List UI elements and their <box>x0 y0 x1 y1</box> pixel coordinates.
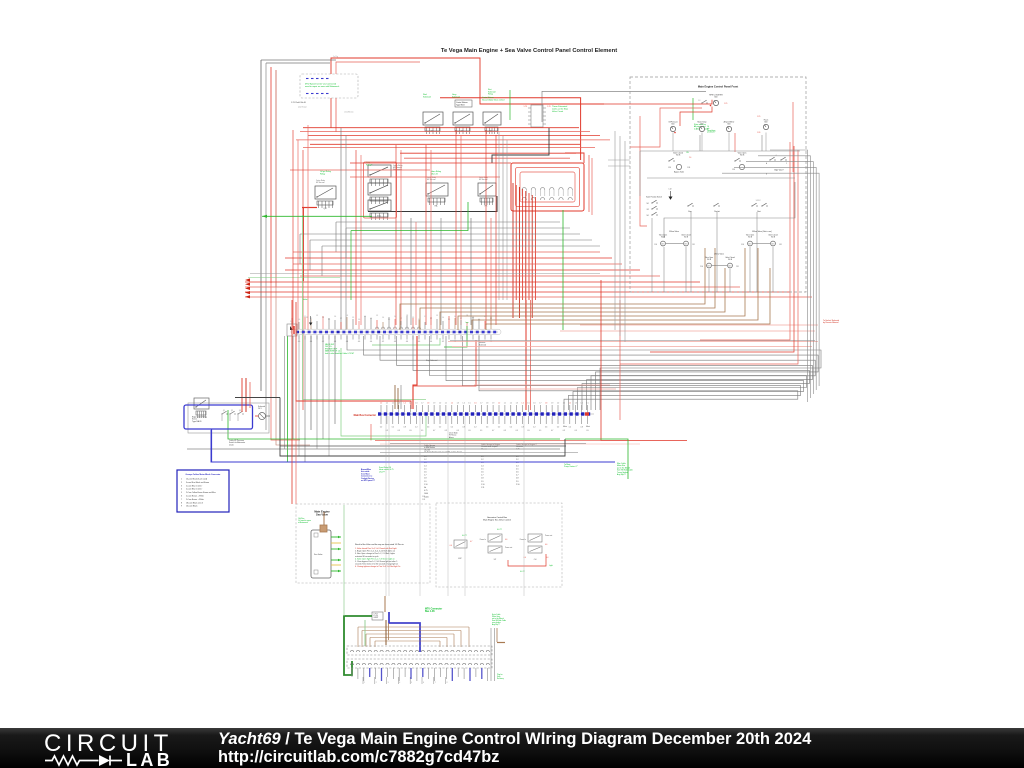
svg-text:1.6: 1.6 <box>481 472 484 474</box>
svg-text:2.6: 2.6 <box>689 157 691 159</box>
svg-text:8Slew Valve (Not in use): 8Slew Valve (Not in use) <box>752 230 772 233</box>
svg-text:UP: UP <box>494 559 497 561</box>
svg-text:8: 8 <box>447 682 448 684</box>
svg-text:1: 1 <box>181 479 182 481</box>
svg-text:1. Valve closed Pins 3+4, 5+6: 1. Valve closed Pins 3+4, 5+6 Closed wit… <box>355 547 397 550</box>
svg-text:700 B: 700 B <box>707 259 711 261</box>
svg-text:Bolt: Bolt <box>728 123 731 126</box>
svg-text:0.4: 0.4 <box>510 427 512 429</box>
svg-text:700 B: 700 B <box>748 236 752 238</box>
svg-text:Light: Light <box>549 564 553 567</box>
svg-text:onw throat: onw throat <box>298 106 307 109</box>
svg-text:0.5: 0.5 <box>527 430 529 432</box>
svg-text:0.4: 0.4 <box>569 427 571 429</box>
svg-text:0.5: 0.5 <box>409 430 411 432</box>
svg-text:1.2: 1.2 <box>451 403 453 405</box>
svg-text:0.8: 0.8 <box>394 341 396 343</box>
svg-text:Temp/alarm: Temp/alarm <box>707 130 716 132</box>
svg-text:0.3: 0.3 <box>504 430 506 432</box>
svg-text:0.2: 0.2 <box>533 427 535 429</box>
svg-text:1.3: 1.3 <box>376 315 378 317</box>
svg-text:1.4: 1.4 <box>382 317 384 319</box>
svg-text:2Slew Valve: 2Slew Valve <box>714 254 724 256</box>
svg-text:1.9: 1.9 <box>424 481 427 483</box>
svg-text:0.0: 0.0 <box>498 427 500 429</box>
svg-text:1.4: 1.4 <box>462 403 464 405</box>
svg-text:from SB Side Cable: from SB Side Cable <box>492 620 506 622</box>
svg-text:1.26: 1.26 <box>757 132 760 134</box>
svg-text:1.3: 1.3 <box>424 462 427 464</box>
svg-text:1.1: 1.1 <box>386 403 388 405</box>
svg-text:1.4: 1.4 <box>403 403 405 405</box>
svg-text:1.6: 1.6 <box>415 403 417 405</box>
svg-text:5Slew Valve: 5Slew Valve <box>669 231 679 233</box>
svg-text:2.2: 2.2 <box>516 459 519 461</box>
svg-text:Groups Cables Motor Block Conn: Groups Cables Motor Block Connector <box>186 473 221 476</box>
svg-text:Q2: Q2 <box>231 410 233 412</box>
svg-text:1.4: 1.4 <box>481 465 484 467</box>
svg-text:1.0: 1.0 <box>439 403 441 405</box>
svg-text:0.5: 0.5 <box>586 430 588 432</box>
svg-text:Oil: Oil <box>707 126 710 128</box>
svg-text:1.3: 1.3 <box>436 315 438 317</box>
svg-text:Pump Contact 'Y': Pump Contact 'Y' <box>564 465 578 468</box>
svg-text:2: 2 <box>376 682 377 684</box>
svg-text:0.8: 0.8 <box>462 427 464 429</box>
svg-text:look in after MainBox Cable 0.: look in after MainBox Cable 0.75 MT <box>325 352 355 355</box>
svg-text:1.25: 1.25 <box>724 103 727 105</box>
svg-text:1.2: 1.2 <box>424 459 427 461</box>
svg-text:Alarm: Alarm <box>449 436 454 439</box>
svg-text:MV Vacuum: MV Vacuum <box>479 179 488 181</box>
svg-text:1.2: 1.2 <box>306 317 308 319</box>
svg-text:1.6: 1.6 <box>394 316 396 318</box>
svg-text:1.4: 1.4 <box>322 317 324 319</box>
svg-text:2-Core Blue 1.5mm²: 2-Core Blue 1.5mm² <box>186 484 203 487</box>
svg-text:1.0: 1.0 <box>498 403 500 405</box>
svg-text:1.1 1.2: 1.1 1.2 <box>756 200 761 202</box>
svg-text:0.9: 0.9 <box>398 430 400 432</box>
svg-text:1.9: 1.9 <box>551 403 553 405</box>
svg-text:0.4.77: 0.4.77 <box>497 529 502 531</box>
svg-text:0.0: 0.0 <box>557 427 559 429</box>
svg-text:Power out: Power out <box>545 534 553 537</box>
svg-text:0.75: 0.75 <box>424 490 428 492</box>
svg-text:5. Close bypass Pins 1+2, 3+8: 5. Close bypass Pins 1+2, 3+8 Green ligh… <box>355 560 397 563</box>
svg-text:0.8: 0.8 <box>403 427 405 429</box>
svg-text:2: 2 <box>181 482 182 484</box>
svg-text:2: 2 <box>786 163 787 165</box>
svg-text:B: B <box>766 174 767 176</box>
svg-text:0.4: 0.4 <box>450 545 452 547</box>
svg-text:1.2: 1.2 <box>481 459 484 461</box>
svg-text:Main Bus Connector: Main Bus Connector <box>354 414 376 417</box>
svg-text:0.6: 0.6 <box>427 427 429 429</box>
svg-text:2-Core Brown + White: 2-Core Brown + White <box>186 495 204 498</box>
svg-text:700 B: 700 B <box>676 155 681 157</box>
svg-text:QM: QM <box>323 208 327 210</box>
svg-text:LAB: LAB <box>126 752 173 768</box>
svg-text:Type RA-31: Type RA-31 <box>192 420 202 423</box>
svg-text:1.4: 1.4 <box>442 317 444 319</box>
svg-text:Carter Relay: Carter Relay <box>479 176 488 179</box>
svg-text:1.25: 1.25 <box>422 496 425 498</box>
svg-text:1.5: 1.5 <box>424 468 427 470</box>
svg-text:24 V: 24 V <box>258 408 262 410</box>
svg-text:Extra Cable: Extra Cable <box>492 613 500 616</box>
svg-text:1.1: 1.1 <box>504 403 506 405</box>
svg-text:RA: RA <box>435 205 438 208</box>
svg-text:Valve Closed: Valve Closed <box>681 235 690 237</box>
svg-text:3: 3 <box>388 682 389 684</box>
svg-text:Main: Main <box>563 426 567 428</box>
svg-text:1.4: 1.4 <box>580 403 582 405</box>
svg-text:Relay: Relay <box>320 173 325 175</box>
svg-text:2.3: 2.3 <box>516 462 519 464</box>
svg-text:1.3: 1.3 <box>316 315 318 317</box>
svg-text:what??: what?? <box>379 470 385 473</box>
svg-text:0.4.77: 0.4.77 <box>462 535 467 537</box>
svg-text:Valve: Valve <box>303 299 307 301</box>
svg-text:1.5: 1.5 <box>527 403 529 405</box>
svg-text:0.7: 0.7 <box>551 430 553 432</box>
svg-text:0.4: 0.4 <box>546 557 548 559</box>
svg-text:MOT: MOT <box>749 244 752 246</box>
svg-text:1.10: 1.10 <box>424 484 428 486</box>
svg-text:1: 1 <box>364 682 365 684</box>
svg-text:0.2: 0.2 <box>415 427 417 429</box>
svg-text:0.4: 0.4 <box>392 427 394 429</box>
svg-text:700 B: 700 B <box>661 236 665 238</box>
svg-text:1.9: 1.9 <box>492 403 494 405</box>
svg-text:1.1: 1.1 <box>424 316 426 318</box>
svg-text:1.6: 1.6 <box>424 472 427 474</box>
svg-text:0.6: 0.6 <box>370 341 372 343</box>
svg-text:0.4: 0.4 <box>406 341 408 343</box>
svg-text:NO: NO <box>647 203 650 205</box>
svg-text:MTU Connector: MTU Connector <box>425 608 442 611</box>
svg-text:ON: ON <box>686 152 689 154</box>
svg-text:0.5: 0.5 <box>468 430 470 432</box>
svg-text:more before: more before <box>492 622 501 624</box>
svg-text:8: 8 <box>181 502 182 504</box>
svg-text:2-Core Brown + White: 2-Core Brown + White <box>186 498 204 501</box>
svg-text:1.26: 1.26 <box>422 499 425 501</box>
svg-text:6: 6 <box>423 682 424 684</box>
svg-text:700 B: 700 B <box>771 236 775 238</box>
svg-text:Te Vega Main Engine + Sea Valv: Te Vega Main Engine + Sea Valve Control … <box>441 48 617 54</box>
svg-text:Bolt: Bolt <box>765 121 768 124</box>
svg-text:4: 4 <box>181 489 182 491</box>
svg-text:1.3: 1.3 <box>516 403 518 405</box>
svg-text:1.2: 1.2 <box>370 318 372 320</box>
svg-text:Bolt: Bolt <box>701 123 704 126</box>
svg-text:RK: RK <box>485 206 488 208</box>
svg-text:Bus 1-06: Bus 1-06 <box>425 611 435 613</box>
svg-text:Power In: Power In <box>480 539 486 541</box>
svg-text:0.7: 0.7 <box>492 430 494 432</box>
svg-text:1.2: 1.2 <box>310 318 312 320</box>
svg-text:p-h: p-h <box>707 128 709 130</box>
svg-text:Power out: Power out <box>505 546 513 549</box>
svg-text:NC: NC <box>647 209 650 211</box>
svg-text:9: 9 <box>181 506 182 508</box>
svg-text:1.76: 1.76 <box>547 106 551 108</box>
svg-text:1.6: 1.6 <box>474 403 476 405</box>
svg-text:1.0: 1.0 <box>380 403 382 405</box>
svg-text:0.2: 0.2 <box>474 427 476 429</box>
svg-text:1.8: 1.8 <box>406 315 408 317</box>
svg-text:Bypass Valve: Bypass Valve <box>674 172 684 174</box>
svg-text:Carter Relay: Carter Relay <box>427 176 436 179</box>
svg-text:1.3: 1.3 <box>481 462 484 464</box>
svg-text:7: 7 <box>181 499 182 501</box>
svg-text:1.0: 1.0 <box>358 319 360 321</box>
svg-text:Valve Open: Valve Open <box>705 257 713 259</box>
svg-text:2-Core Blue 1.5mm²: 2-Core Blue 1.5mm² <box>186 488 203 491</box>
svg-text:NO: NO <box>647 215 650 217</box>
svg-text:2.30: 2.30 <box>700 266 703 268</box>
svg-text:1.7: 1.7 <box>460 318 462 320</box>
svg-text:Carter Relay: Carter Relay <box>316 179 325 182</box>
svg-text:1.9: 1.9 <box>412 317 414 319</box>
svg-text:0.2: 0.2 <box>442 341 444 343</box>
svg-text:2.31: 2.31 <box>736 266 739 268</box>
svg-text:0.8: 0.8 <box>580 427 582 429</box>
svg-text:Valve Open: Valve Open <box>746 235 754 237</box>
svg-text:1.7: 1.7 <box>421 403 423 405</box>
svg-text:Main Engine Sea Valve Control: Main Engine Sea Valve Control <box>483 518 511 521</box>
svg-text:16-Core Black: 16-Core Black <box>186 506 197 508</box>
svg-text:0.6: 0.6 <box>486 427 488 429</box>
svg-text:2. Begin Open Pins 1+2, 3+4, 5: 2. Begin Open Pins 1+2, 3+4, 5+10 Both l… <box>355 550 396 553</box>
svg-text:1.7: 1.7 <box>481 475 484 477</box>
svg-text:1.32: 1.32 <box>668 189 671 191</box>
svg-text:Solenoid: Solenoid <box>423 96 431 98</box>
svg-text:1.8: 1.8 <box>424 478 427 480</box>
svg-text:1.5: 1.5 <box>481 468 484 470</box>
svg-text:Valve Position Switch: Valve Position Switch <box>646 196 662 199</box>
svg-text:Plug for: Plug for <box>497 674 503 676</box>
svg-text:Relay?: Relay? <box>366 164 373 166</box>
svg-text:2.7: 2.7 <box>516 475 519 477</box>
svg-text:1.31: 1.31 <box>692 244 695 246</box>
svg-text:1.9: 1.9 <box>352 317 354 319</box>
svg-text:0.0: 0.0 <box>418 341 420 343</box>
svg-text:in Motorweck: in Motorweck <box>298 521 308 524</box>
svg-text:Power In: Power In <box>520 539 526 541</box>
svg-text:1.36: 1.36 <box>732 169 735 171</box>
svg-text:1.3: 1.3 <box>575 403 577 405</box>
svg-text:Sea Valve: Sea Valve <box>316 513 329 517</box>
svg-text:Relay: Relay <box>488 94 493 96</box>
svg-text:0.1: 0.1 <box>480 430 482 432</box>
svg-text:1.30: 1.30 <box>654 244 657 246</box>
svg-text:700 B: 700 B <box>728 259 732 261</box>
svg-text:1.8: 1.8 <box>481 478 484 480</box>
svg-text:Valve Open: Valve Open <box>659 235 667 237</box>
svg-text:0.1: 0.1 <box>421 430 423 432</box>
svg-text:1.8: 1.8 <box>486 403 488 405</box>
svg-text:0.4: 0.4 <box>451 427 453 429</box>
svg-text:by Remote Material: by Remote Material <box>823 321 839 324</box>
svg-text:1.25: 1.25 <box>757 116 760 118</box>
svg-text:0.0: 0.0 <box>358 341 360 343</box>
svg-text:Sea Valve: Sea Valve <box>314 554 322 556</box>
svg-text:0.0: 0.0 <box>380 427 382 429</box>
svg-text:1.5: 1.5 <box>468 403 470 405</box>
svg-text:Start: Start <box>757 210 761 213</box>
svg-text:Type MZ4: Type MZ4 <box>456 104 464 106</box>
svg-text:MOT: MOT <box>772 244 775 246</box>
svg-text:CH: CH <box>534 559 537 561</box>
svg-text:1.3: 1.3 <box>398 403 400 405</box>
svg-text:Bolt: Bolt <box>672 123 675 126</box>
svg-text:2.8: 2.8 <box>516 478 519 480</box>
svg-text:MV Vacuum: MV Vacuum <box>316 182 325 184</box>
svg-text:1x Pig: 1x Pig <box>333 56 338 58</box>
svg-text:5: 5 <box>411 682 412 684</box>
svg-text:Aug Slip??: Aug Slip?? <box>617 473 626 476</box>
svg-text:Vacuum Auto Glass verted: Vacuum Auto Glass verted <box>482 98 504 101</box>
svg-text:6. Closing tightens change to: 6. Closing tightens change to Pins 3+4, … <box>355 565 400 568</box>
svg-text:1.4: 1.4 <box>521 403 523 405</box>
svg-text:1.1: 1.1 <box>563 403 565 405</box>
svg-text:1.2: 1.2 <box>569 403 571 405</box>
svg-text:1.10: 1.10 <box>481 484 485 486</box>
svg-text:Bolt: Bolt <box>715 96 718 99</box>
svg-text:2.9: 2.9 <box>516 481 519 483</box>
svg-text:Bilge Valve?: Bilge Valve? <box>774 170 783 172</box>
svg-text:0.6: 0.6 <box>545 544 547 546</box>
svg-text:0.6: 0.6 <box>505 539 507 541</box>
svg-text:Man 24: Man 24 <box>431 173 439 175</box>
svg-text:Main Engine Control Panel Fron: Main Engine Control Panel Front <box>698 85 738 89</box>
svg-text:1.3: 1.3 <box>457 403 459 405</box>
svg-text:7: 7 <box>435 682 436 684</box>
svg-text:0.6: 0.6 <box>430 341 432 343</box>
svg-text:0.9: 0.9 <box>575 430 577 432</box>
svg-text:Recovery: Recovery <box>497 678 504 680</box>
svg-text:1000: 1000 <box>424 493 428 495</box>
svg-text:Lime/Brown: Lime/Brown <box>344 112 354 114</box>
svg-text:1.75: 1.75 <box>524 106 528 108</box>
svg-text:Q1: Q1 <box>223 410 225 412</box>
svg-text:1.5: 1.5 <box>328 319 330 321</box>
svg-text:1.8: 1.8 <box>346 315 348 317</box>
svg-text:1.7: 1.7 <box>539 403 541 405</box>
svg-text:1.2: 1.2 <box>510 403 512 405</box>
svg-text:4: 4 <box>399 682 400 684</box>
svg-text:0.2: 0.2 <box>382 341 384 343</box>
svg-text:10-core Black (3-set used): 10-core Black (3-set used) <box>186 478 207 481</box>
svg-text:Q3: Q3 <box>239 410 241 412</box>
svg-text:1.9: 1.9 <box>433 403 435 405</box>
svg-text:700 B: 700 B <box>684 236 688 238</box>
svg-text:1.6: 1.6 <box>334 316 336 318</box>
svg-text:5: 5 <box>181 492 182 494</box>
svg-text:1.36: 1.36 <box>668 167 671 169</box>
svg-text:Diode: Diode <box>229 444 234 446</box>
svg-text:1-PDA: 1-PDA <box>374 613 378 616</box>
svg-text:K6P: K6P <box>458 558 462 560</box>
svg-text:1.8: 1.8 <box>545 403 547 405</box>
svg-text:Mast: Mast <box>586 425 590 428</box>
svg-text:MV Vacuum: MV Vacuum <box>427 179 436 181</box>
svg-text:Valve Circuit: Valve Circuit <box>552 110 564 113</box>
svg-text:MOT: MOT <box>685 244 688 246</box>
svg-text:MOT: MOT <box>729 266 732 268</box>
svg-text:1.11: 1.11 <box>481 487 484 489</box>
svg-text:4. Valve Open Tight Pins 1+2,: 4. Valve Open Tight Pins 1+2, 7+8 Green … <box>355 557 395 560</box>
svg-text:1.3: 1.3 <box>698 100 700 102</box>
svg-text:Stop Solenoid: Stop Solenoid <box>426 359 437 362</box>
svg-text:1.0: 1.0 <box>557 403 559 405</box>
svg-text:1.2: 1.2 <box>430 318 432 320</box>
svg-text:1.6: 1.6 <box>454 316 456 318</box>
svg-text:3: 3 <box>181 485 182 487</box>
svg-text:1.7: 1.7 <box>340 318 342 320</box>
svg-text:0.9: 0.9 <box>516 430 518 432</box>
svg-text:1.2: 1.2 <box>392 403 394 405</box>
svg-text:1.4: 1.4 <box>424 465 427 467</box>
svg-text:1.0: 1.0 <box>298 319 300 321</box>
svg-text:seconds Timer kicks in for 30: seconds Timer kicks in for 30 seconds Or… <box>355 563 398 566</box>
svg-text:Diag: Diag <box>497 676 500 678</box>
svg-text:loop: loop <box>465 322 468 324</box>
svg-text:1.9: 1.9 <box>481 481 484 483</box>
svg-text:0.7: 0.7 <box>470 541 472 543</box>
svg-text:need to repair as soon with Mo: need to repair as soon with Motorweck <box>305 85 339 88</box>
svg-text:A: A <box>766 162 768 165</box>
svg-text:0.8: 0.8 <box>521 427 523 429</box>
svg-text:0.0: 0.0 <box>439 427 441 429</box>
svg-text:700 B: 700 B <box>740 155 745 157</box>
svg-text:1.8: 1.8 <box>427 403 429 405</box>
svg-text:1.7: 1.7 <box>424 475 427 477</box>
svg-text:1.5: 1.5 <box>586 403 588 405</box>
svg-text:2.6: 2.6 <box>516 472 519 474</box>
svg-text:Nx: Nx <box>424 487 426 489</box>
svg-text:1.5: 1.5 <box>409 403 411 405</box>
svg-text:1.5: 1.5 <box>448 319 450 321</box>
svg-text:0.6: 0.6 <box>545 427 547 429</box>
svg-text:MOT: MOT <box>662 244 665 246</box>
svg-text:2.4: 2.4 <box>516 465 519 467</box>
svg-text:0.3: 0.3 <box>445 430 447 432</box>
svg-text:Solenoid: Solenoid <box>452 96 460 98</box>
svg-text:1.6: 1.6 <box>533 403 535 405</box>
svg-text:1.25 Rule! Btt.40: 1.25 Rule! Btt.40 <box>291 101 307 104</box>
svg-text:0.1: 0.1 <box>539 430 541 432</box>
svg-text:2.10: 2.10 <box>516 484 520 486</box>
svg-text:3-core Blue Black and Brown: 3-core Blue Black and Brown <box>186 482 209 484</box>
svg-text:Result of the Valve and the wa: Result of the Valve and the way we have … <box>355 543 405 546</box>
svg-text:2-Core Yellow/Green Brown and: 2-Core Yellow/Green Brown and Blue <box>186 492 216 494</box>
svg-text:1.1: 1.1 <box>445 403 447 405</box>
svg-text:5.31: 5.31 <box>779 244 782 246</box>
svg-text:1.1: 1.1 <box>364 316 366 318</box>
svg-text:2.5: 2.5 <box>516 468 519 470</box>
svg-text:0.7: 0.7 <box>433 430 435 432</box>
svg-text:6: 6 <box>181 496 182 498</box>
svg-text:MOT: MOT <box>708 266 711 268</box>
svg-text:on MTU panel??: on MTU panel?? <box>361 480 375 482</box>
svg-text:Valve Closed: Valve Closed <box>725 257 734 259</box>
svg-text:1.7: 1.7 <box>480 403 482 405</box>
svg-text:activated 30 seconds to cycle: activated 30 seconds to cycle <box>355 555 378 558</box>
svg-text:1.36: 1.36 <box>687 167 690 169</box>
